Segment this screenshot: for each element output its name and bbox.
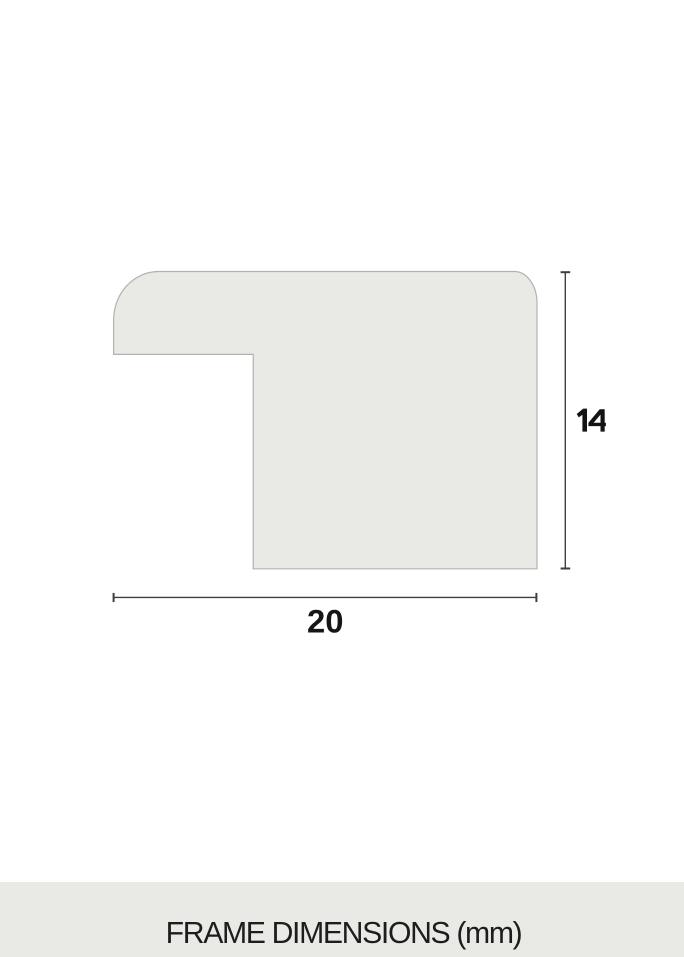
svg-text:20: 20 (307, 603, 344, 639)
svg-text:FRAME DIMENSIONS (mm): FRAME DIMENSIONS (mm) (166, 917, 522, 950)
